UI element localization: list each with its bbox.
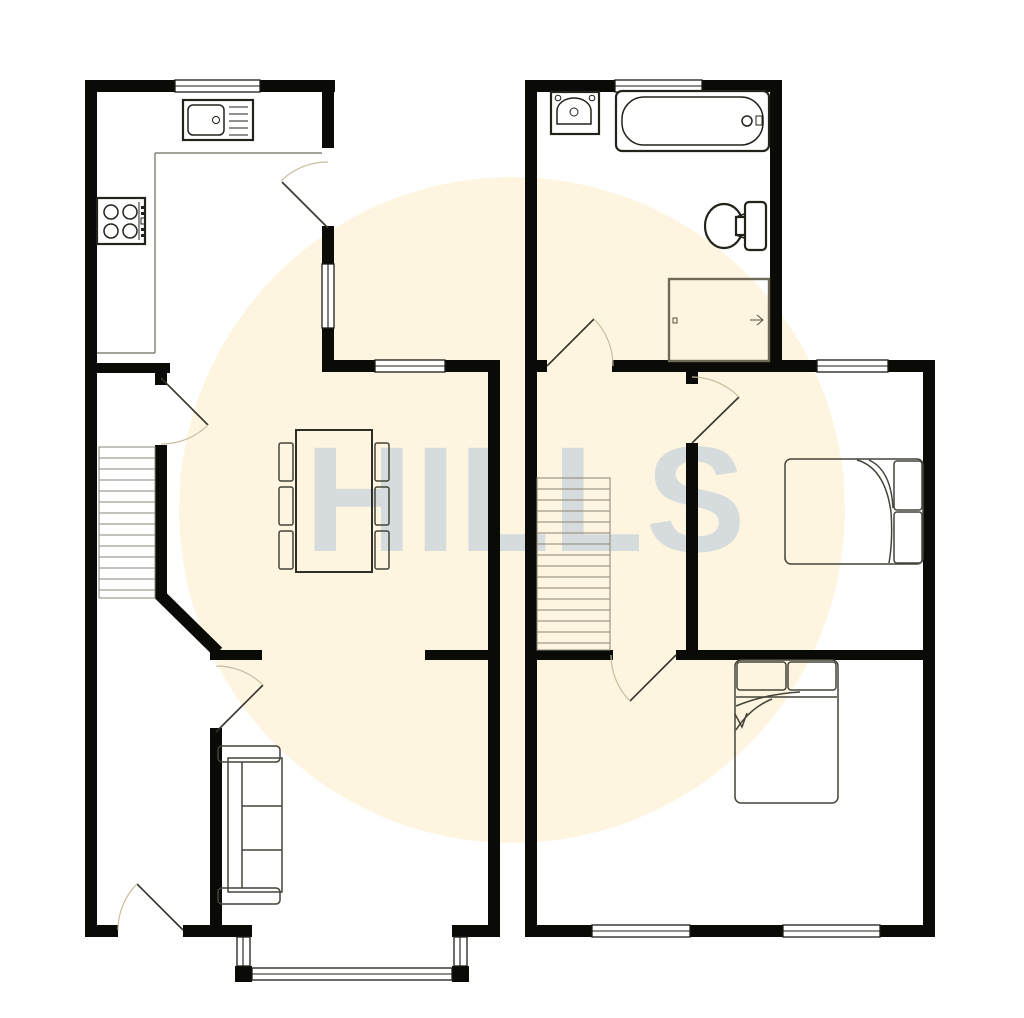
first-floor-plan	[525, 80, 935, 937]
kitchen-sink-icon	[183, 100, 253, 140]
ground-floor-plan	[85, 80, 500, 982]
bay-window	[237, 937, 467, 980]
floorplan-canvas: HILLS	[0, 0, 1024, 1018]
living-room-door	[216, 666, 263, 732]
sofa-icon	[218, 746, 282, 904]
kitchen-door	[281, 162, 328, 228]
front-door	[118, 884, 183, 930]
bedroom2-window-left	[592, 925, 690, 937]
kitchen-worktop	[97, 153, 322, 353]
hall-dining-door	[161, 378, 208, 444]
bedroom2-door	[611, 655, 676, 701]
hob-icon	[97, 198, 145, 244]
dining-room-window	[375, 360, 445, 372]
kitchen-top-window	[175, 80, 260, 92]
bathroom-door	[547, 319, 613, 366]
bedroom1-window	[817, 360, 888, 372]
toilet-icon	[705, 202, 766, 250]
bedroom1-door	[692, 377, 739, 443]
floor-plan-drawing	[0, 0, 1024, 1018]
ground-floor-stairs	[99, 447, 155, 598]
wash-basin-icon	[551, 92, 599, 134]
bath-tub-icon	[616, 91, 769, 151]
dining-table-icon	[279, 430, 389, 572]
bedroom2-window-right	[783, 925, 880, 937]
single-bed-icon	[785, 459, 923, 564]
kitchen-side-window	[322, 264, 334, 328]
airing-cupboard-icon	[669, 279, 769, 361]
first-floor-stairs	[537, 478, 610, 650]
double-bed-icon	[735, 660, 838, 803]
